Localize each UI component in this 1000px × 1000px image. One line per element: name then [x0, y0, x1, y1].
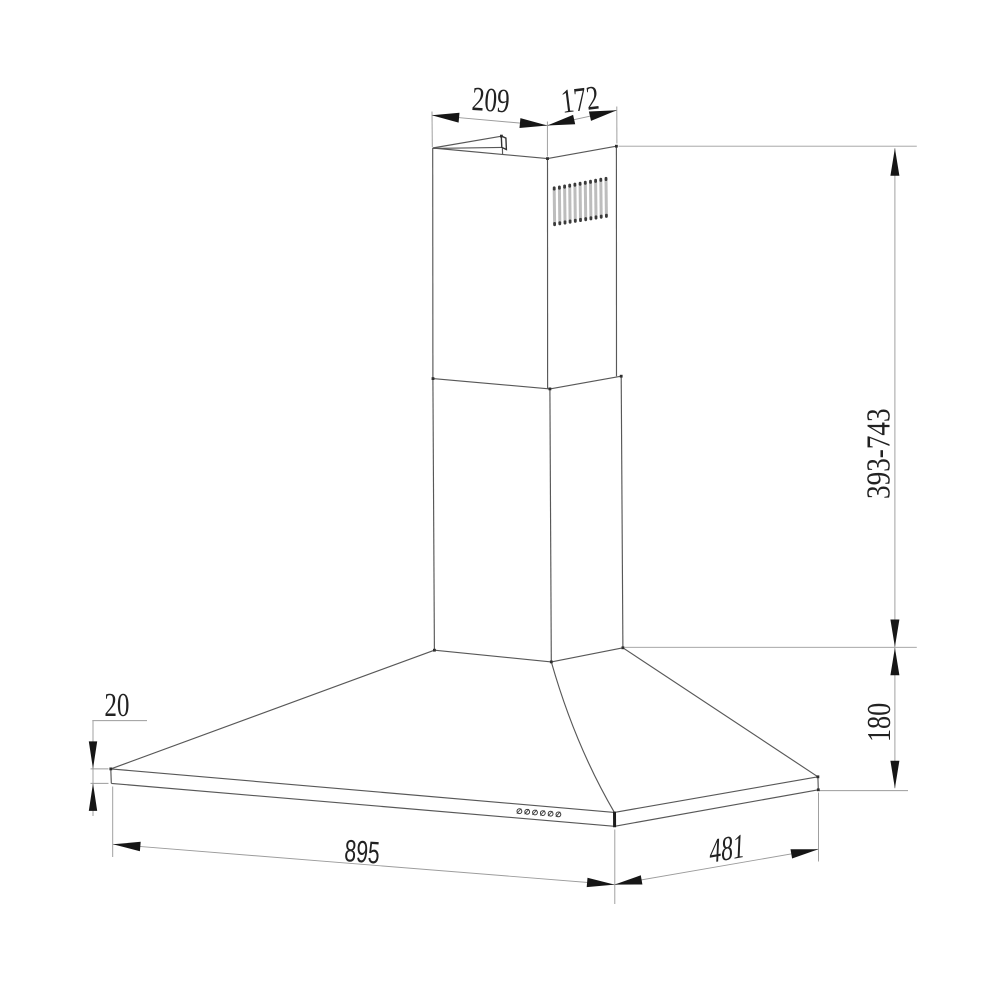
svg-text:209: 209	[471, 80, 511, 120]
svg-text:20: 20	[104, 686, 129, 724]
svg-text:393-743: 393-743	[860, 408, 898, 499]
svg-text:172: 172	[559, 79, 601, 121]
svg-text:180: 180	[860, 703, 898, 742]
svg-text:895: 895	[343, 833, 381, 870]
svg-text:481: 481	[708, 828, 746, 871]
